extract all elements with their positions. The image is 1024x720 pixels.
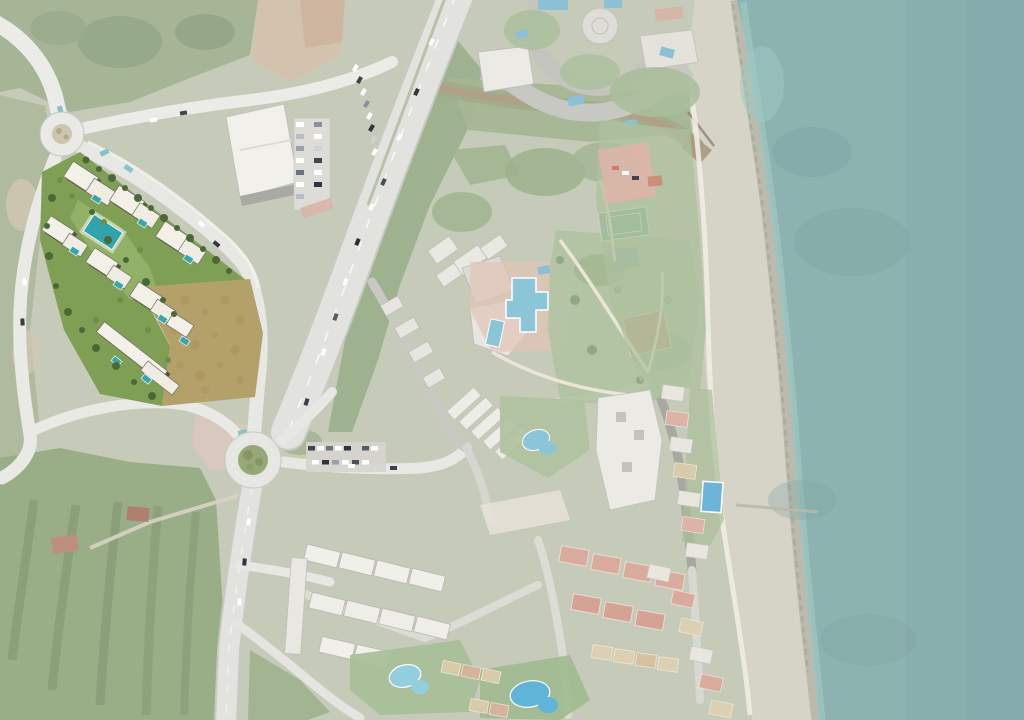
courtyard <box>616 412 626 422</box>
beach-townhouse <box>685 543 709 560</box>
plot-scrub <box>212 332 218 338</box>
townhouse-row-south <box>635 653 657 669</box>
car <box>344 446 351 451</box>
plot-scrub <box>217 362 223 368</box>
car-lot <box>314 158 322 163</box>
plot-scrub <box>180 295 190 305</box>
site-tree <box>142 278 150 286</box>
car-road <box>390 466 397 470</box>
car <box>322 460 329 465</box>
car <box>332 460 339 465</box>
site-tree-light <box>101 219 107 225</box>
townhouse-row-south <box>591 645 613 661</box>
beach-townhouse <box>681 517 705 534</box>
site-tree-light <box>117 297 123 303</box>
site-tree <box>160 297 166 303</box>
car-lot <box>296 134 304 139</box>
car <box>362 460 369 465</box>
car <box>335 446 342 451</box>
car <box>353 446 360 451</box>
shallow-mouth <box>740 46 784 122</box>
forest-bottom-left <box>0 448 230 720</box>
site-tree <box>212 256 220 264</box>
beach-townhouse <box>669 437 693 454</box>
site-tree-light <box>57 177 63 183</box>
reef-patch <box>768 480 836 520</box>
site-tree <box>92 344 100 352</box>
site-tree <box>186 234 194 242</box>
car-lot <box>296 158 304 163</box>
car <box>317 446 324 451</box>
plot-scrub <box>201 386 209 394</box>
car-lot <box>296 170 304 175</box>
pine-clump <box>432 192 492 232</box>
site-tree <box>148 392 156 400</box>
kidney-pool-lobe <box>539 441 557 455</box>
site-tree-light <box>93 317 99 323</box>
island-tree <box>247 464 254 471</box>
forest-clump <box>30 11 86 45</box>
site-tree <box>53 283 59 289</box>
site-tree <box>200 246 206 252</box>
reef-patch <box>794 208 910 276</box>
car-lot <box>314 146 322 151</box>
deep-sea <box>965 0 1024 720</box>
park-tree <box>570 295 580 305</box>
site-tree <box>226 268 232 274</box>
reef-patch <box>820 614 916 666</box>
site-tree <box>104 236 112 244</box>
island-tree <box>255 458 263 466</box>
plot-scrub <box>190 340 200 350</box>
complex-pool-lobe <box>411 680 429 694</box>
car <box>312 460 319 465</box>
hut-red-roof <box>126 506 149 522</box>
car-road <box>237 598 242 605</box>
pool-washed <box>604 0 622 8</box>
beachfront-pool <box>701 481 723 512</box>
car-lot <box>314 170 322 175</box>
site-tree <box>89 209 95 215</box>
courtyard <box>634 430 644 440</box>
car <box>308 446 315 451</box>
car-road <box>242 558 247 565</box>
site-tree <box>48 194 56 202</box>
forest-clump <box>175 14 235 50</box>
resort-lawn <box>560 54 620 90</box>
forest-clump <box>78 16 162 68</box>
island-shrub <box>56 128 62 134</box>
park-tree <box>587 345 597 355</box>
roundabout-north-island <box>52 124 72 144</box>
site-tree <box>64 308 72 316</box>
site-tree <box>134 194 142 202</box>
car-road <box>20 318 24 325</box>
aerial-map-svg <box>0 0 1024 720</box>
plot-scrub <box>230 345 240 355</box>
beach-townhouse <box>661 385 685 402</box>
site-tree-light <box>165 357 171 363</box>
plot-scrub <box>220 295 230 305</box>
car-lot <box>314 134 322 139</box>
site-tree <box>112 362 120 370</box>
site-tree <box>79 327 85 333</box>
car-lot <box>314 182 322 187</box>
courtyard <box>622 462 632 472</box>
townhouse-row-south <box>657 657 679 673</box>
pool-washed <box>538 0 568 10</box>
park-tree <box>556 256 564 264</box>
site-tree <box>174 225 180 231</box>
ring-plaza <box>582 8 618 44</box>
car <box>352 460 359 465</box>
dirt-patch-red <box>300 0 345 48</box>
reef-patch <box>772 127 852 177</box>
site-tree <box>123 257 129 263</box>
car-lot <box>296 122 304 127</box>
car <box>371 446 378 451</box>
car <box>342 460 349 465</box>
beach-townhouse <box>677 491 701 508</box>
building-west-block <box>478 46 534 92</box>
site-tree <box>96 166 102 172</box>
plot-scrub <box>176 361 184 369</box>
aerial-map-viewport <box>0 0 1024 720</box>
site-tree <box>148 205 154 211</box>
car-lot <box>314 122 322 127</box>
plot-scrub <box>236 376 244 384</box>
car-lot <box>296 182 304 187</box>
site-tree-light <box>145 327 151 333</box>
plot-scrub <box>236 316 244 324</box>
car-beach-lot <box>632 176 639 180</box>
car <box>326 446 333 451</box>
white-complex-west <box>596 390 662 510</box>
plot-scrub <box>195 370 205 380</box>
pine-clump <box>505 148 585 196</box>
site-tree <box>160 214 168 222</box>
site-tree <box>108 174 116 182</box>
car-beach-lot <box>622 171 629 175</box>
resort-lawn <box>504 10 560 50</box>
beach-townhouse <box>673 463 697 480</box>
site-tree-light <box>137 247 143 253</box>
townhouse-row-south <box>613 649 635 665</box>
plot-scrub <box>202 309 208 315</box>
site-tree <box>122 185 128 191</box>
site-tree <box>171 311 177 317</box>
island-shrub <box>64 135 69 140</box>
big-pool-lobe <box>538 697 558 713</box>
beach-bar <box>648 175 663 186</box>
island-tree <box>243 450 253 460</box>
roundabout-main-island <box>238 445 268 475</box>
car-lot <box>296 194 304 199</box>
car-road <box>348 464 355 468</box>
site-tree <box>45 252 53 260</box>
site-tree <box>44 223 50 229</box>
car-lot <box>296 146 304 151</box>
car <box>362 446 369 451</box>
car-road <box>22 278 27 285</box>
resort-lawn <box>610 67 700 117</box>
site-tree <box>131 379 137 385</box>
site-tree-light <box>69 193 75 199</box>
beach-townhouse <box>665 411 689 428</box>
site-tree <box>83 157 90 164</box>
car-beach-lot <box>612 166 619 170</box>
